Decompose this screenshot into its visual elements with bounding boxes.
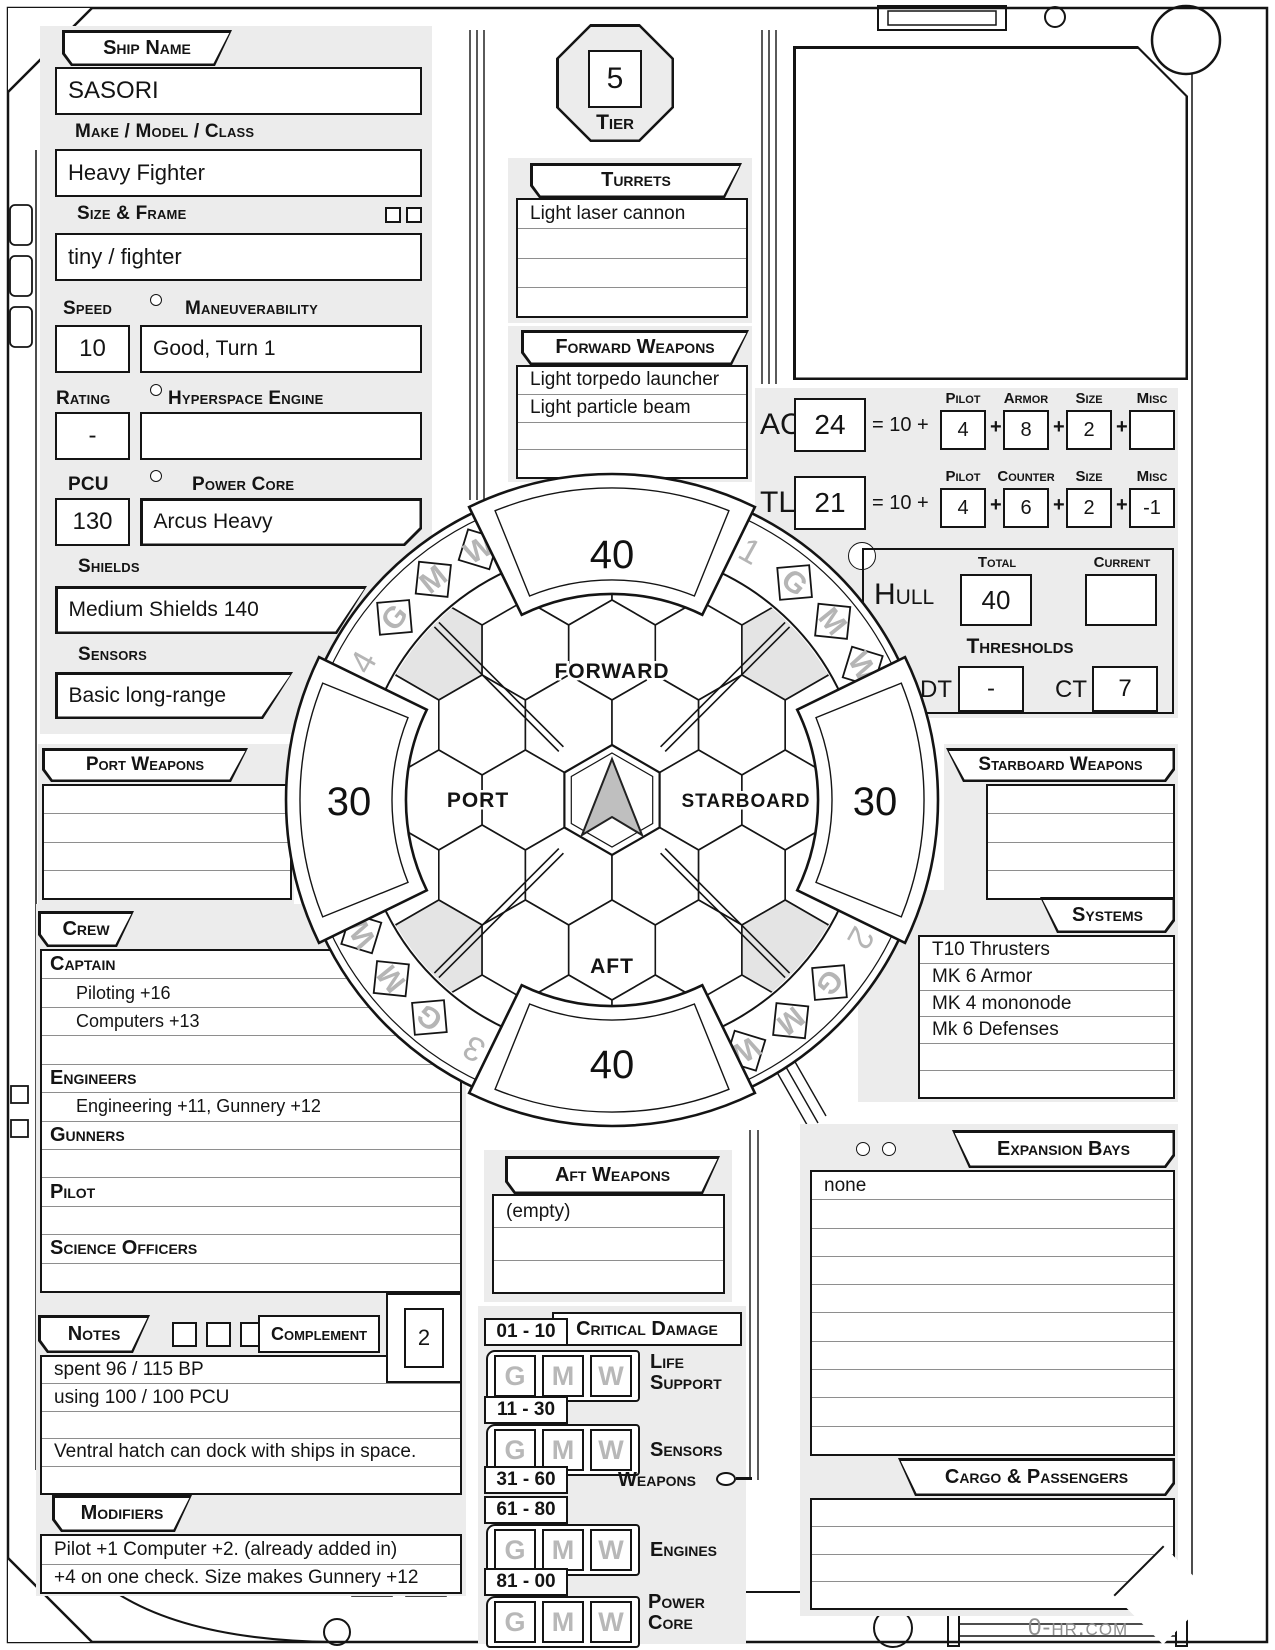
- expansion-bullet-icon: [856, 1142, 870, 1156]
- list-item: [812, 1370, 1173, 1398]
- crew-skill: [42, 1264, 460, 1291]
- shield-value-port: 30: [327, 780, 372, 824]
- ac-misc-label: Misc: [1122, 390, 1182, 407]
- crit-checkbox: G: [494, 1355, 536, 1397]
- list-item: Mk 6 Defenses: [920, 1017, 1173, 1044]
- list-item: [920, 1071, 1173, 1097]
- ship-sketch-box: [793, 46, 1188, 380]
- size-frame-label: Size & Frame: [77, 203, 186, 225]
- port-weapons-list: [42, 784, 292, 900]
- list-item: [812, 1427, 1173, 1454]
- crew-role: Science Officers: [42, 1235, 460, 1263]
- modifiers-tab: Modifiers: [52, 1495, 192, 1532]
- hyperspace-bullet-icon: [150, 384, 162, 396]
- crit-checkbox: W: [590, 1601, 632, 1643]
- expansion-bays-list: none: [810, 1170, 1175, 1456]
- ac-armor-field: 8: [1003, 410, 1049, 450]
- starboard-weapons-tab: Starboard Weapons: [946, 748, 1175, 782]
- crit-checkbox: M: [542, 1355, 584, 1397]
- tl-counter-field: 6: [1003, 488, 1049, 528]
- tier-label: Tier: [556, 110, 674, 136]
- crew-skill: [42, 1207, 460, 1235]
- shields-label: Shields: [78, 556, 140, 578]
- crit-checkbox: W: [590, 1429, 632, 1471]
- starship-sheet: Ship Name SASORI Make / Model / Class He…: [0, 0, 1275, 1650]
- crit-system-label: Life Support: [650, 1352, 750, 1394]
- pcu-label: PCU: [68, 474, 109, 496]
- list-item: MK 4 mononode: [920, 991, 1173, 1018]
- expansion-bullet-icon: [882, 1142, 896, 1156]
- hyperspace-label: Hyperspace Engine: [168, 388, 323, 410]
- size-checkbox-1: [385, 207, 401, 223]
- crit-checkbox: G: [494, 1429, 536, 1471]
- shield-value-forward: 40: [590, 533, 635, 577]
- list-item: Light laser cannon: [518, 200, 746, 229]
- list-item: [44, 843, 290, 871]
- maneuverability-bullet-icon: [150, 294, 162, 306]
- make-field: Heavy Fighter: [55, 149, 422, 197]
- list-item: [518, 423, 746, 451]
- list-item: [494, 1228, 723, 1260]
- hyperspace-field: [140, 412, 422, 460]
- modifier-line: Pilot +1 Computer +2. (already added in): [42, 1536, 460, 1565]
- list-item: (empty): [494, 1196, 723, 1228]
- ac-formula: = 10 +: [872, 414, 929, 437]
- weapons-connector-icon: [716, 1472, 736, 1486]
- sensors-label: Sensors: [78, 644, 147, 666]
- crit-checkbox: M: [542, 1601, 584, 1643]
- ac-armor-label: Armor: [996, 390, 1056, 407]
- list-item: [44, 871, 290, 898]
- crit-checkbox: W: [590, 1355, 632, 1397]
- speed-field: 10: [55, 325, 130, 373]
- plus-sign: +: [1116, 494, 1128, 517]
- list-item: [44, 786, 290, 814]
- systems-list: T10 Thrusters MK 6 Armor MK 4 mononode M…: [918, 935, 1175, 1099]
- crit-range: 81 - 00: [484, 1568, 568, 1596]
- crit-boxes-power-core: G M W: [486, 1596, 640, 1648]
- power-core-label: Power Core: [192, 474, 294, 496]
- crit-system-label: Power Core: [648, 1592, 748, 1634]
- list-item: [812, 1398, 1173, 1426]
- plus-sign: +: [1053, 416, 1065, 439]
- list-item: [812, 1285, 1173, 1313]
- forward-weapons-list: Light torpedo launcher Light particle be…: [516, 365, 748, 479]
- port-weapons-tab: Port Weapons: [42, 748, 248, 782]
- list-item: [812, 1527, 1173, 1554]
- notes-checkbox: [172, 1322, 197, 1347]
- hull-total-field: 40: [960, 574, 1032, 626]
- aft-weapons-tab: Aft Weapons: [505, 1156, 720, 1194]
- sensors-field: Basic long-range: [55, 672, 293, 719]
- turrets-list: Light laser cannon: [516, 198, 748, 318]
- watermark: 0-hr.com: [1028, 1614, 1128, 1642]
- ac-size-field: 2: [1066, 410, 1112, 450]
- shield-value-aft: 40: [590, 1043, 635, 1087]
- list-item: [812, 1200, 1173, 1228]
- ship-name-field: SASORI: [55, 67, 422, 115]
- ct-field: 7: [1092, 666, 1158, 712]
- size-frame-field: tiny / fighter: [55, 233, 422, 281]
- arc-label-port: PORT: [447, 789, 509, 812]
- crew-skill: [42, 1150, 460, 1178]
- plus-sign: +: [1116, 416, 1128, 439]
- list-item: [920, 1044, 1173, 1071]
- tl-size-field: 2: [1066, 488, 1112, 528]
- crit-range: 61 - 80: [484, 1496, 568, 1524]
- aft-weapons-list: (empty): [492, 1194, 725, 1294]
- maneuverability-label: Maneuverability: [185, 298, 318, 320]
- pcu-field: 130: [55, 498, 130, 546]
- note-line: [42, 1467, 460, 1493]
- crit-checkbox: M: [542, 1529, 584, 1571]
- rating-field: -: [55, 412, 130, 460]
- plus-sign: +: [990, 416, 1002, 439]
- tl-misc-field: -1: [1129, 488, 1175, 528]
- list-item: [494, 1261, 723, 1292]
- crit-boxes-life-support: G M W: [486, 1350, 640, 1402]
- tier-field: 5: [588, 50, 642, 108]
- systems-tab: Systems: [1040, 897, 1175, 933]
- note-line: Ventral hatch can dock with ships in spa…: [42, 1439, 460, 1466]
- list-item: Light torpedo launcher: [518, 367, 746, 395]
- ship-arc-diagram: 1 G M W 2 G M W 3 G M W 4 G M W: [280, 468, 944, 1132]
- list-item: [988, 814, 1173, 842]
- expansion-bays-tab: Expansion Bays: [952, 1130, 1175, 1168]
- size-checkbox-2: [406, 207, 422, 223]
- list-item: [988, 871, 1173, 898]
- power-core-bullet-icon: [150, 470, 162, 482]
- crit-system-label: Weapons: [618, 1470, 728, 1491]
- make-label: Make / Model / Class: [75, 121, 254, 143]
- list-item: [44, 814, 290, 842]
- complement-field: 2: [404, 1308, 444, 1368]
- tl-pilot-field: 4: [940, 488, 986, 528]
- list-item: [988, 786, 1173, 814]
- ac-size-label: Size: [1059, 390, 1119, 407]
- crew-role: Pilot: [42, 1178, 460, 1206]
- ac-pilot-field: 4: [940, 410, 986, 450]
- crit-system-label: Engines: [650, 1540, 750, 1561]
- cargo-tab: Cargo & Passengers: [898, 1458, 1175, 1496]
- modifier-line: +4 on one check. Size makes Gunnery +12: [42, 1565, 460, 1593]
- list-item: [812, 1342, 1173, 1370]
- crit-range: 31 - 60: [484, 1466, 568, 1494]
- arc-label-aft: AFT: [590, 955, 634, 978]
- maneuverability-field: Good, Turn 1: [140, 325, 422, 373]
- crit-checkbox: M: [542, 1429, 584, 1471]
- ac-pilot-label: Pilot: [933, 390, 993, 407]
- weapons-connector-line: [736, 1477, 752, 1480]
- tl-misc-label: Misc: [1122, 468, 1182, 485]
- modifiers-list: Pilot +1 Computer +2. (already added in)…: [40, 1534, 462, 1594]
- list-item: [812, 1257, 1173, 1285]
- critical-damage-header: Critical Damage: [552, 1312, 742, 1346]
- ct-label: CT: [1055, 676, 1087, 704]
- crit-system-label: Sensors: [650, 1440, 750, 1461]
- ship-name-tab: Ship Name: [62, 30, 232, 66]
- crit-checkbox: G: [494, 1601, 536, 1643]
- list-item: none: [812, 1172, 1173, 1200]
- arc-label-forward: FORWARD: [554, 660, 669, 683]
- crit-checkbox: G: [494, 1529, 536, 1571]
- plus-sign: +: [1053, 494, 1065, 517]
- list-item: [518, 288, 746, 316]
- notes-tab: Notes: [38, 1315, 150, 1353]
- list-item: [518, 229, 746, 258]
- complement-label-box: Complement: [258, 1315, 380, 1353]
- list-item: Light particle beam: [518, 395, 746, 423]
- arc-label-starboard: STARBOARD: [682, 791, 811, 812]
- list-item: [812, 1313, 1173, 1341]
- tl-size-label: Size: [1059, 468, 1119, 485]
- list-item: [988, 843, 1173, 871]
- turrets-tab: Turrets: [530, 163, 742, 198]
- crit-range: 11 - 30: [484, 1396, 568, 1424]
- note-line: [42, 1412, 460, 1439]
- list-item: [812, 1555, 1173, 1582]
- crit-checkbox: W: [590, 1529, 632, 1571]
- hull-current-field: [1085, 574, 1157, 626]
- shield-value-starboard: 30: [853, 780, 898, 824]
- plus-sign: +: [990, 494, 1002, 517]
- ac-misc-field: [1129, 410, 1175, 450]
- crit-range: 01 - 10: [484, 1318, 568, 1346]
- dt-field: -: [958, 666, 1024, 712]
- ac-total-field: 24: [794, 398, 866, 452]
- list-item: [812, 1500, 1173, 1527]
- thresholds-label: Thresholds: [930, 636, 1110, 658]
- speed-label: Speed: [63, 298, 112, 320]
- tl-counter-label: Counter: [991, 468, 1061, 485]
- list-item: MK 6 Armor: [920, 964, 1173, 991]
- list-item: [812, 1229, 1173, 1257]
- notes-checkbox: [206, 1322, 231, 1347]
- starboard-weapons-list: [986, 784, 1175, 900]
- forward-weapons-tab: Forward Weapons: [521, 330, 749, 365]
- rating-label: Rating: [56, 388, 110, 410]
- list-item: [518, 259, 746, 288]
- hull-current-label: Current: [1075, 554, 1169, 571]
- ship-name-label: Ship Name: [65, 33, 230, 64]
- note-line: using 100 / 100 PCU: [42, 1384, 460, 1411]
- hull-total-label: Total: [950, 554, 1044, 571]
- list-item: T10 Thrusters: [920, 937, 1173, 964]
